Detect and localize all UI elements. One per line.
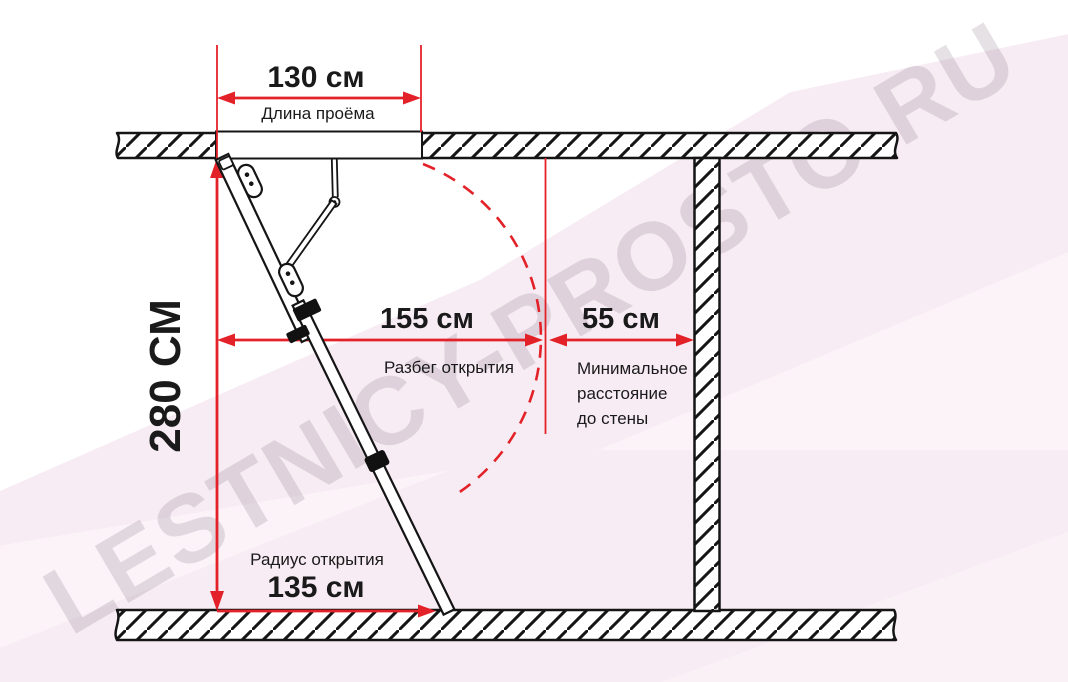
opening-run-value: 155 см: [347, 304, 507, 336]
wall-clearance-label: Минимальное расстояние до стены: [577, 356, 707, 431]
opening-length-value: 130 см: [236, 61, 396, 94]
ceiling-slab: [117, 132, 898, 159]
wall-clearance-line-3: до стены: [577, 406, 707, 431]
ceiling-height-value: 280 СМ: [142, 296, 190, 456]
floor-slab: [116, 610, 896, 640]
opening-length-label: Длина проёма: [238, 103, 398, 124]
wall-clearance-value: 55 см: [541, 304, 701, 336]
strut-arm: [285, 200, 337, 269]
opening-run-label: Разбег открытия: [369, 357, 529, 378]
opening-radius-value: 135 см: [236, 571, 396, 604]
wall-clearance-line-1: Минимальное: [577, 356, 707, 381]
attic-ladder: [216, 154, 455, 615]
opening-radius-label: Радиус открытия: [237, 549, 397, 570]
attic-ladder-dimension-diagram: LESTNICY-PROSTO.RU: [0, 0, 1068, 682]
wall-clearance-line-2: расстояние: [577, 381, 707, 406]
opening-frame: [216, 132, 422, 159]
dimension-280: [210, 158, 224, 611]
